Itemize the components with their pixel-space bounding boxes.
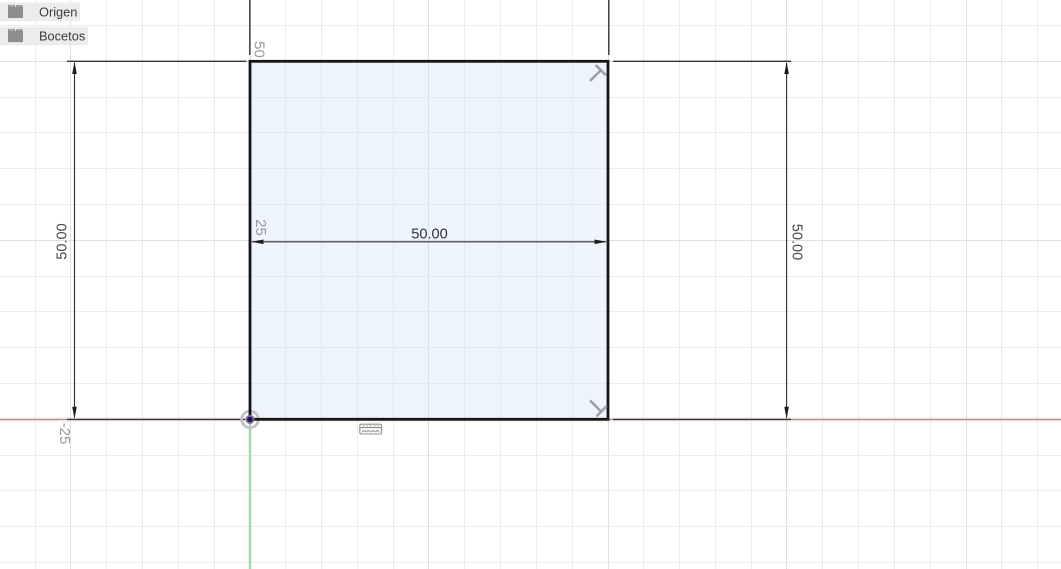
svg-text:-25: -25 — [56, 423, 73, 445]
svg-text:50.00: 50.00 — [789, 224, 805, 261]
svg-text:50: 50 — [251, 41, 268, 58]
svg-text:Bocetos: Bocetos — [39, 29, 85, 44]
svg-text:25: 25 — [252, 219, 269, 236]
svg-text:50.00: 50.00 — [55, 223, 71, 260]
svg-text:Origen: Origen — [39, 4, 77, 19]
svg-text:50.00: 50.00 — [411, 226, 448, 242]
